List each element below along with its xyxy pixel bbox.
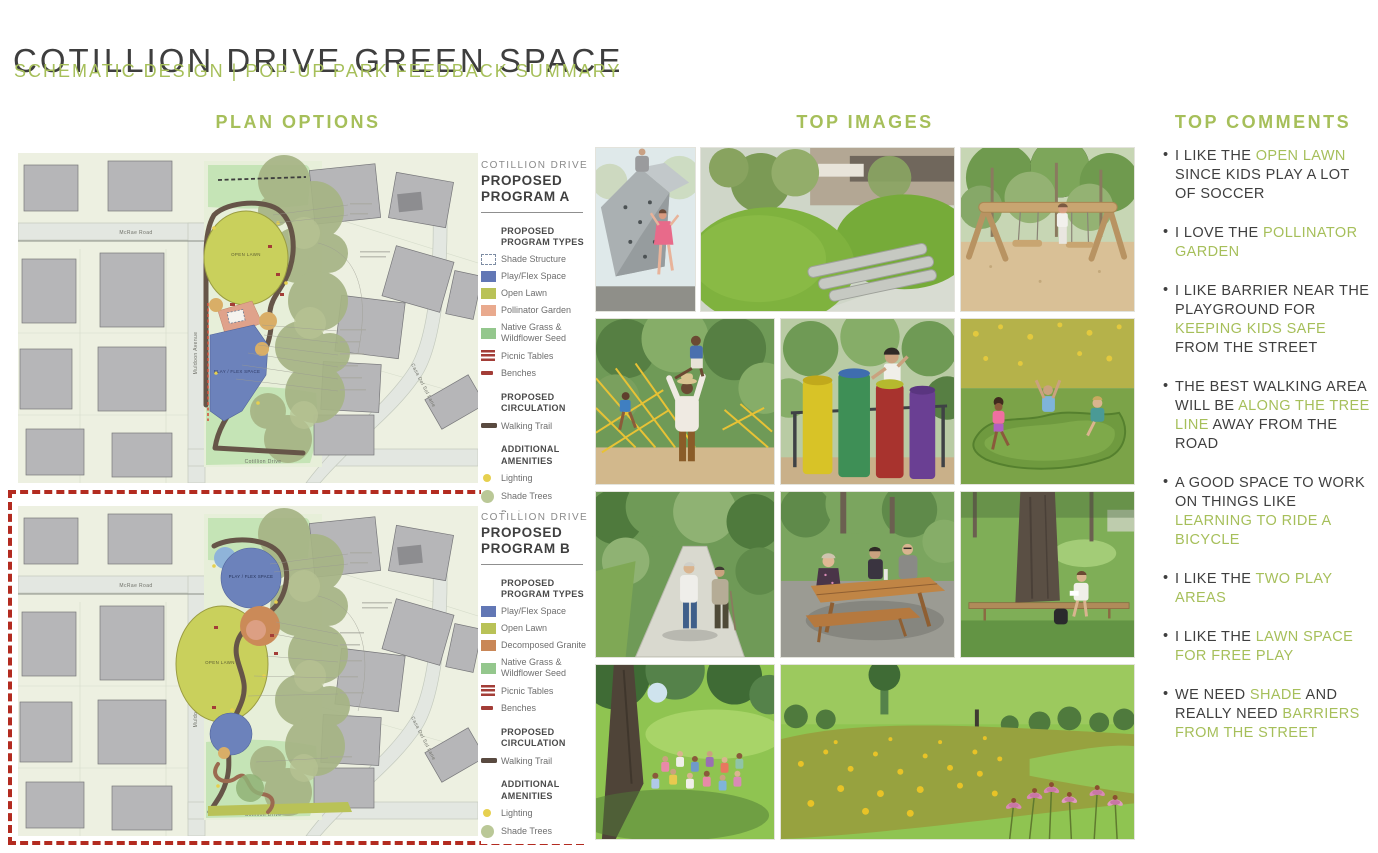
comment-text: A GOOD SPACE TO WORK ON THINGS LIKE: [1175, 475, 1365, 510]
comment-highlight: SHADE: [1250, 687, 1302, 703]
legend-item: Decomposed Granite: [481, 640, 589, 651]
photo-grass-mounds: [700, 147, 955, 312]
plan-a-open-lawn-label: OPEN LAWN: [231, 252, 261, 257]
comment-text: WE NEED: [1175, 687, 1250, 703]
comment-item: •I LIKE BARRIER NEAR THE PLAYGROUND FOR …: [1163, 282, 1370, 358]
legend-item: Open Lawn: [481, 623, 589, 634]
legend-swatch-cell: [481, 423, 501, 428]
comment-item: •I LOVE THE POLLINATOR GARDEN: [1163, 224, 1370, 262]
comment-text: I LOVE THE: [1175, 225, 1263, 241]
legend-section-heading: PROPOSED CIRCULATION: [501, 727, 585, 750]
comment-text: I LIKE THE: [1175, 629, 1256, 645]
legend-swatch-cell: [481, 474, 501, 482]
comment-text: I LIKE THE: [1175, 148, 1256, 164]
legend-section-heading: ADDITIONAL AMENITIES: [501, 444, 585, 467]
legend-swatch-tree: [481, 825, 494, 838]
comment-item: •I LIKE THE LAWN SPACE FOR FREE PLAY: [1163, 628, 1370, 666]
legend-swatch-cell: [481, 809, 501, 817]
comment-text: FROM THE STREET: [1175, 340, 1318, 356]
bullet-icon: •: [1163, 473, 1168, 492]
photo-musical-tubes: [780, 318, 955, 485]
legend-item: Lighting: [481, 808, 589, 819]
legend-swatch-cell: [481, 825, 501, 838]
legend-item-label: Shade Trees: [501, 491, 552, 502]
legend-item-label: Lighting: [501, 473, 533, 484]
legend-item: Shade Trees: [481, 825, 589, 838]
bullet-icon: •: [1163, 685, 1168, 704]
legend-item: Lighting: [481, 473, 589, 484]
legend-item: Open Lawn: [481, 288, 589, 299]
legend-swatch-cell: [481, 305, 501, 316]
photo-lawn-gathering: [595, 664, 775, 840]
bullet-icon: •: [1163, 377, 1168, 396]
legend-swatch-cell: [481, 685, 501, 697]
top-images-grid: [595, 147, 1135, 842]
bullet-icon: •: [1163, 627, 1168, 646]
legend-swatch-tree: [481, 490, 494, 503]
comment-text: I LIKE BARRIER NEAR THE PLAYGROUND FOR: [1175, 283, 1369, 318]
legend-item: Walking Trail: [481, 755, 589, 766]
legend-swatch-rect: [481, 663, 496, 674]
legend-swatch-cell: [481, 663, 501, 674]
legend-item-label: Picnic Tables: [501, 351, 553, 362]
comment-item: •I LIKE THE TWO PLAY AREAS: [1163, 570, 1370, 608]
legend-section-heading: PROPOSED CIRCULATION: [501, 392, 585, 415]
legend-item: Play/Flex Space: [481, 606, 589, 617]
legend-swatch-dot: [483, 809, 491, 817]
legend-section-heading: ADDITIONAL AMENITIES: [501, 779, 585, 802]
legend-item-label: Play/Flex Space: [501, 606, 566, 617]
legend-item-label: Native Grass & Wildflower Seed: [501, 322, 589, 344]
comment-highlight: KEEPING KIDS SAFE: [1175, 321, 1326, 337]
legend-item-label: Picnic Tables: [501, 686, 553, 697]
legend-item-label: Native Grass & Wildflower Seed: [501, 657, 589, 679]
legend-divider: [481, 212, 583, 213]
legend-item: Native Grass & Wildflower Seed: [481, 657, 589, 679]
comment-item: •WE NEED SHADE AND REALLY NEED BARRIERS …: [1163, 686, 1370, 743]
legend-section-heading: PROPOSED PROGRAM TYPES: [501, 578, 585, 601]
legend-item: Benches: [481, 703, 589, 714]
comment-highlight: OPEN LAWN: [1256, 148, 1346, 164]
legend-item-label: Decomposed Granite: [501, 640, 586, 651]
legend-swatch-rect: [481, 305, 496, 316]
photo-picnic-table: [780, 491, 955, 658]
photo-log-swing: [960, 147, 1135, 312]
comment-item: •I LIKE THE OPEN LAWN SINCE KIDS PLAY A …: [1163, 147, 1370, 204]
legend-swatch-dashed: [481, 254, 496, 265]
legend-swatch-rect: [481, 328, 496, 339]
legend-plan-title: PROPOSED PROGRAM B: [481, 525, 576, 557]
legend-section-heading: PROPOSED PROGRAM TYPES: [501, 226, 585, 249]
legend-project-name: COTILLION DRIVE: [481, 160, 589, 171]
legend-item-label: Walking Trail: [501, 421, 552, 432]
legend-item: Shade Trees: [481, 490, 589, 503]
legend-divider: [481, 564, 583, 565]
plan-a-open-lawn: [204, 211, 288, 305]
legend-swatch-cell: [481, 758, 501, 763]
legend-swatch-trail: [481, 758, 497, 763]
legend-swatch-picnic: [481, 685, 495, 697]
legend-item-label: Benches: [501, 368, 536, 379]
legend-item: Native Grass & Wildflower Seed: [481, 322, 589, 344]
photo-green-spinner: [960, 318, 1135, 485]
legend-item: Shade Structure: [481, 254, 589, 265]
legend-swatch-cell: [481, 640, 501, 651]
legend-item-label: Benches: [501, 703, 536, 714]
comment-text: I LIKE THE: [1175, 571, 1255, 587]
legend-swatch-rect: [481, 640, 496, 651]
slide: McRae Road Muldoon Avenue Casa Del Sol L…: [0, 0, 1378, 853]
legend-swatch-cell: [481, 623, 501, 634]
legend-swatch-trail: [481, 423, 497, 428]
legend-swatch-cell: [481, 706, 501, 710]
legend-swatch-dot: [483, 474, 491, 482]
photo-trail-walkers: [595, 491, 775, 658]
plan-b-legend: COTILLION DRIVE PROPOSED PROGRAM B PROPO…: [481, 512, 589, 844]
legend-item: Walking Trail: [481, 420, 589, 431]
legend-swatch-cell: [481, 490, 501, 503]
comment-item: •THE BEST WALKING AREA WILL BE ALONG THE…: [1163, 378, 1370, 454]
legend-swatch-rect: [481, 271, 496, 282]
page-subtitle: SCHEMATIC DESIGN | POP-UP PARK FEEDBACK …: [14, 61, 621, 82]
photo-wildflower-meadow: [780, 664, 1135, 840]
bullet-icon: •: [1163, 146, 1168, 165]
top-comments-header: TOP COMMENTS: [1155, 112, 1371, 133]
legend-swatch-bench: [481, 371, 493, 375]
bullet-icon: •: [1163, 223, 1168, 242]
legend-swatch-rect: [481, 606, 496, 617]
legend-item-label: Play/Flex Space: [501, 271, 566, 282]
legend-item: Picnic Tables: [481, 350, 589, 362]
legend-swatch-cell: [481, 328, 501, 339]
legend-item: Pollinator Garden: [481, 305, 589, 316]
legend-item-label: Walking Trail: [501, 756, 552, 767]
legend-item: Picnic Tables: [481, 685, 589, 697]
legend-swatch-cell: [481, 288, 501, 299]
photo-bench-under-tree: [960, 491, 1135, 658]
legend-item: Play/Flex Space: [481, 271, 589, 282]
comment-text: SINCE KIDS PLAY A LOT OF SOCCER: [1175, 167, 1349, 202]
legend-item-label: Shade Trees: [501, 826, 552, 837]
comments-list: •I LIKE THE OPEN LAWN SINCE KIDS PLAY A …: [1163, 147, 1370, 763]
plan-options-header: PLAN OPTIONS: [18, 112, 578, 133]
plan-a-play-flex-label: PLAY / FLEX SPACE: [214, 369, 260, 374]
bullet-icon: •: [1163, 569, 1168, 588]
legend-swatch-cell: [481, 350, 501, 362]
legend-plan-title: PROPOSED PROGRAM A: [481, 173, 576, 205]
comment-item: •A GOOD SPACE TO WORK ON THINGS LIKE LEA…: [1163, 474, 1370, 550]
legend-item-label: Pollinator Garden: [501, 305, 571, 316]
legend-item-label: Lighting: [501, 808, 533, 819]
legend-swatch-rect: [481, 623, 496, 634]
bullet-icon: •: [1163, 281, 1168, 300]
legend-item-label: Shade Structure: [501, 254, 566, 265]
legend-swatch-bench: [481, 706, 493, 710]
legend-swatch-rect: [481, 288, 496, 299]
legend-swatch-cell: [481, 371, 501, 375]
legend-swatch-picnic: [481, 350, 495, 362]
top-images-header: TOP IMAGES: [595, 112, 1135, 133]
legend-swatch-cell: [481, 271, 501, 282]
photo-father-child-playground: [595, 318, 775, 485]
legend-item: Benches: [481, 368, 589, 379]
photo-climbing-boulder: [595, 147, 696, 312]
plan-a-map: OPEN LAWN PLAY / FLEX SPACE: [18, 153, 478, 483]
legend-item-label: Open Lawn: [501, 288, 547, 299]
legend-swatch-cell: [481, 606, 501, 617]
legend-item-label: Open Lawn: [501, 623, 547, 634]
comment-highlight: LEARNING TO RIDE A BICYCLE: [1175, 513, 1331, 548]
legend-swatch-cell: [481, 254, 501, 265]
legend-project-name: COTILLION DRIVE: [481, 512, 589, 523]
plan-a-legend: COTILLION DRIVE PROPOSED PROGRAM A PROPO…: [481, 160, 589, 526]
